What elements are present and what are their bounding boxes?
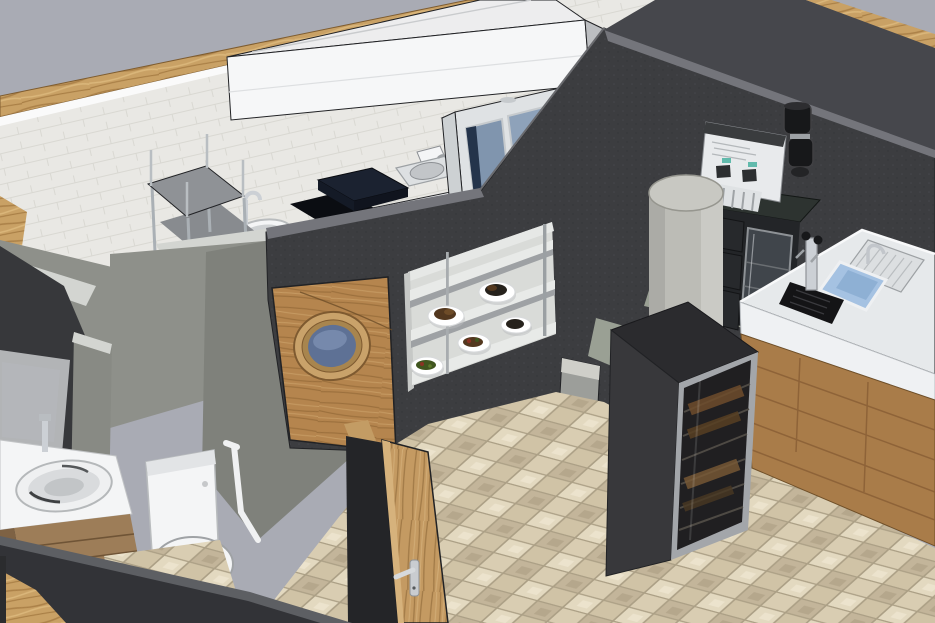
group-head: [716, 165, 731, 178]
vanity-faucet: [42, 418, 48, 452]
wine-fridge: [606, 302, 758, 576]
flush-button: [202, 481, 208, 487]
porthole-swing-door: [272, 277, 396, 452]
plated-dish: [458, 334, 491, 355]
group-head: [742, 169, 757, 182]
3d-viewport[interactable]: [0, 0, 935, 623]
plated-dish: [428, 306, 465, 329]
oven-vent: [500, 97, 516, 103]
plated-dish: [479, 282, 516, 305]
plated-dish: [501, 317, 532, 336]
restroom-mirror: [0, 350, 70, 454]
plated-dish: [411, 357, 444, 378]
3d-model-stage: [0, 0, 935, 623]
